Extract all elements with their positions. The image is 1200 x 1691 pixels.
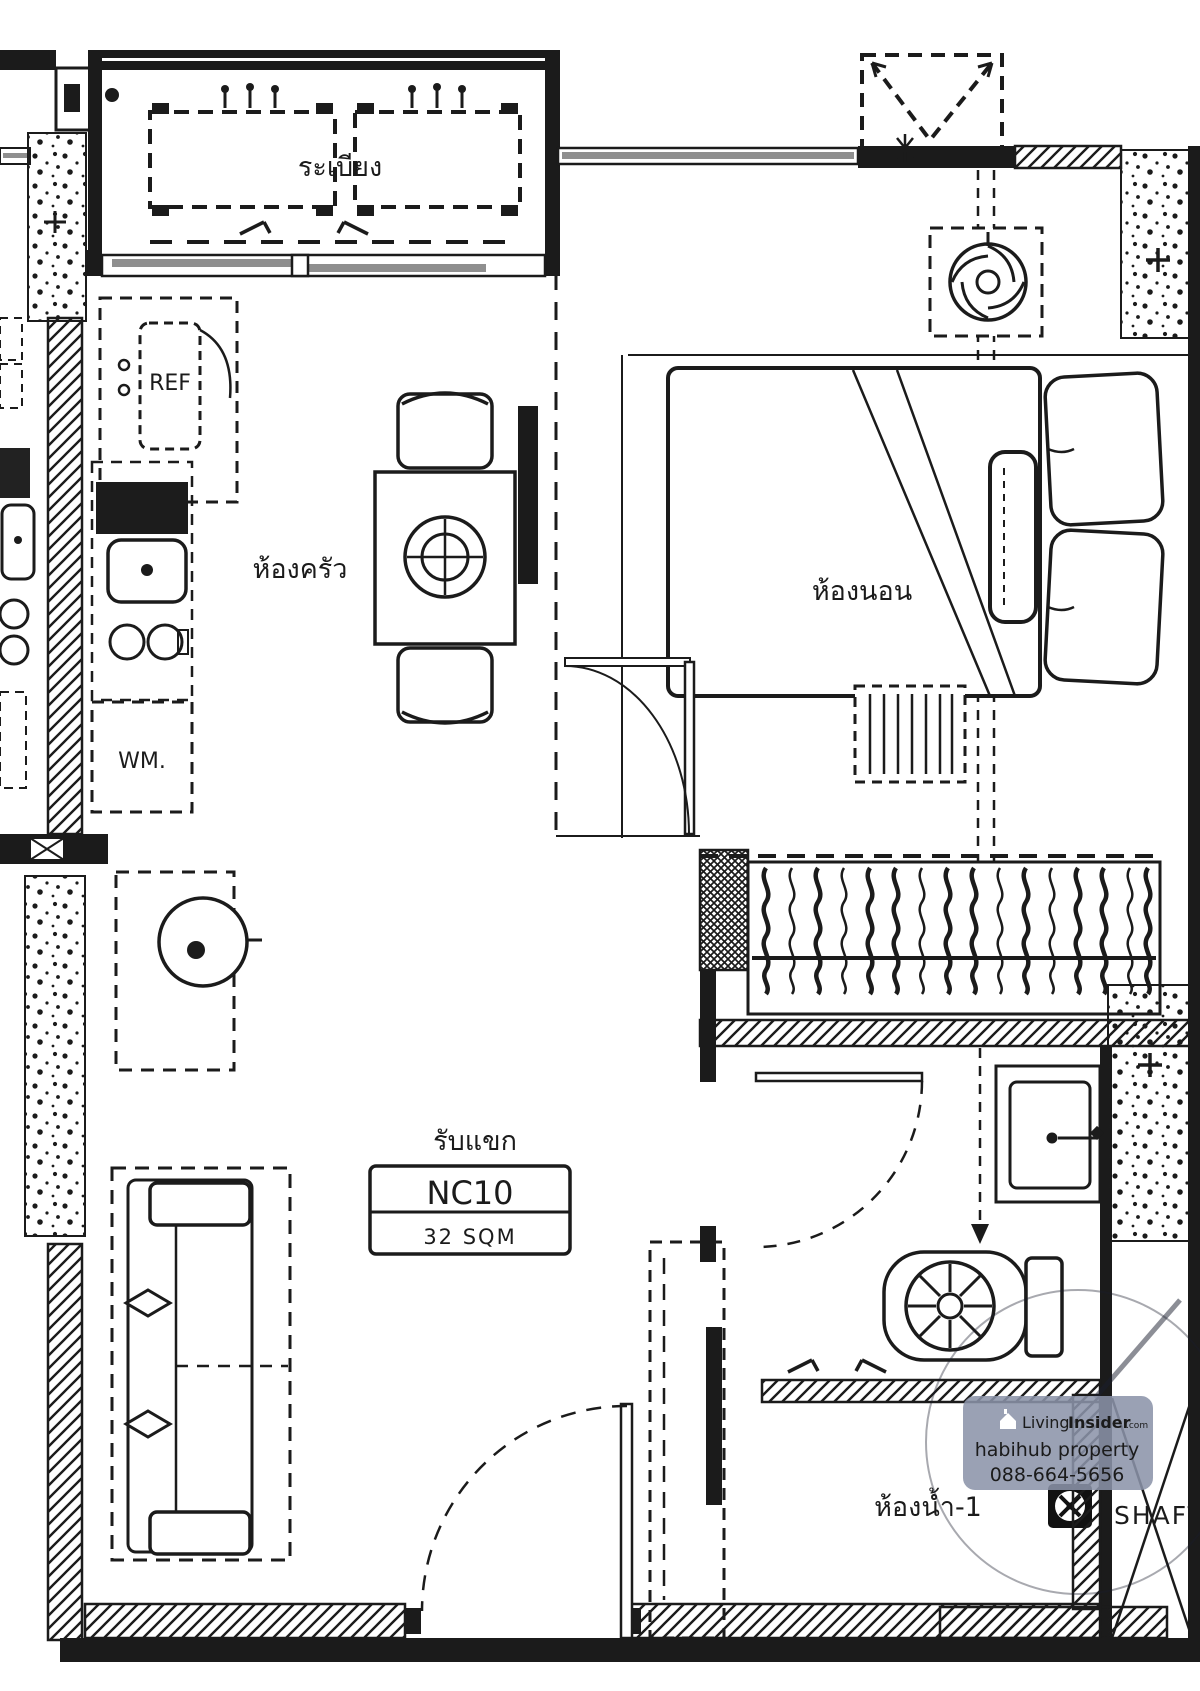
exterior-wall-right xyxy=(1188,146,1200,1662)
concrete-column xyxy=(1108,985,1192,1241)
counter-top xyxy=(96,482,188,534)
shaft-label: SHAFT xyxy=(1114,1501,1200,1530)
dining-chair xyxy=(398,648,492,723)
watermark-phone: 088-664-5656 xyxy=(990,1464,1125,1486)
sliding-door xyxy=(102,255,545,276)
watermark-badge: Living Insider .com habihub property 088… xyxy=(963,1396,1153,1490)
ac-indoor-unit xyxy=(930,228,1042,336)
survey-dot xyxy=(105,88,119,102)
refrigerator-label: REF xyxy=(149,371,191,396)
floor-lamp xyxy=(159,898,247,986)
wardrobe xyxy=(700,850,1160,1014)
pillow xyxy=(1044,529,1164,685)
bedroom-label: ห้องนอน xyxy=(812,576,912,607)
sofa-armrest xyxy=(150,1512,250,1554)
wardrobe-end-panel xyxy=(700,850,748,970)
unit-info-box: NC10 32 SQM xyxy=(370,1166,570,1254)
toilet xyxy=(884,1252,1062,1360)
dining-chair xyxy=(398,393,492,468)
watermark-brand-first: Living xyxy=(1022,1413,1070,1432)
balcony-label: ระเบียง xyxy=(298,152,382,183)
concrete-column xyxy=(25,876,85,1236)
unit-code: NC10 xyxy=(427,1174,514,1212)
exterior-wall-bottom xyxy=(60,1638,1200,1662)
concrete-column xyxy=(28,133,86,321)
unit-area: 32 SQM xyxy=(423,1225,516,1249)
floor-plan-canvas: ระเบียง xyxy=(0,0,1200,1691)
watermark-agency: habihub property xyxy=(975,1439,1140,1461)
bedside-bench xyxy=(855,686,965,782)
watermark-brand-second: Insider xyxy=(1068,1413,1131,1432)
kitchen-label: ห้องครัว xyxy=(253,554,348,585)
sofa-armrest xyxy=(150,1183,250,1225)
pillow xyxy=(1044,372,1164,526)
washing-machine-label: WM. xyxy=(118,749,166,774)
dining-table xyxy=(375,472,515,644)
bed xyxy=(668,368,1164,696)
washbasin xyxy=(996,1066,1104,1202)
living-label: รับแขก xyxy=(433,1126,517,1157)
watermark-brand-tld: .com xyxy=(1126,1421,1148,1431)
bolster-cushion xyxy=(990,452,1036,622)
bathroom-label: ห้องน้ำ-1 xyxy=(874,1487,982,1523)
concrete-column xyxy=(1121,150,1191,338)
